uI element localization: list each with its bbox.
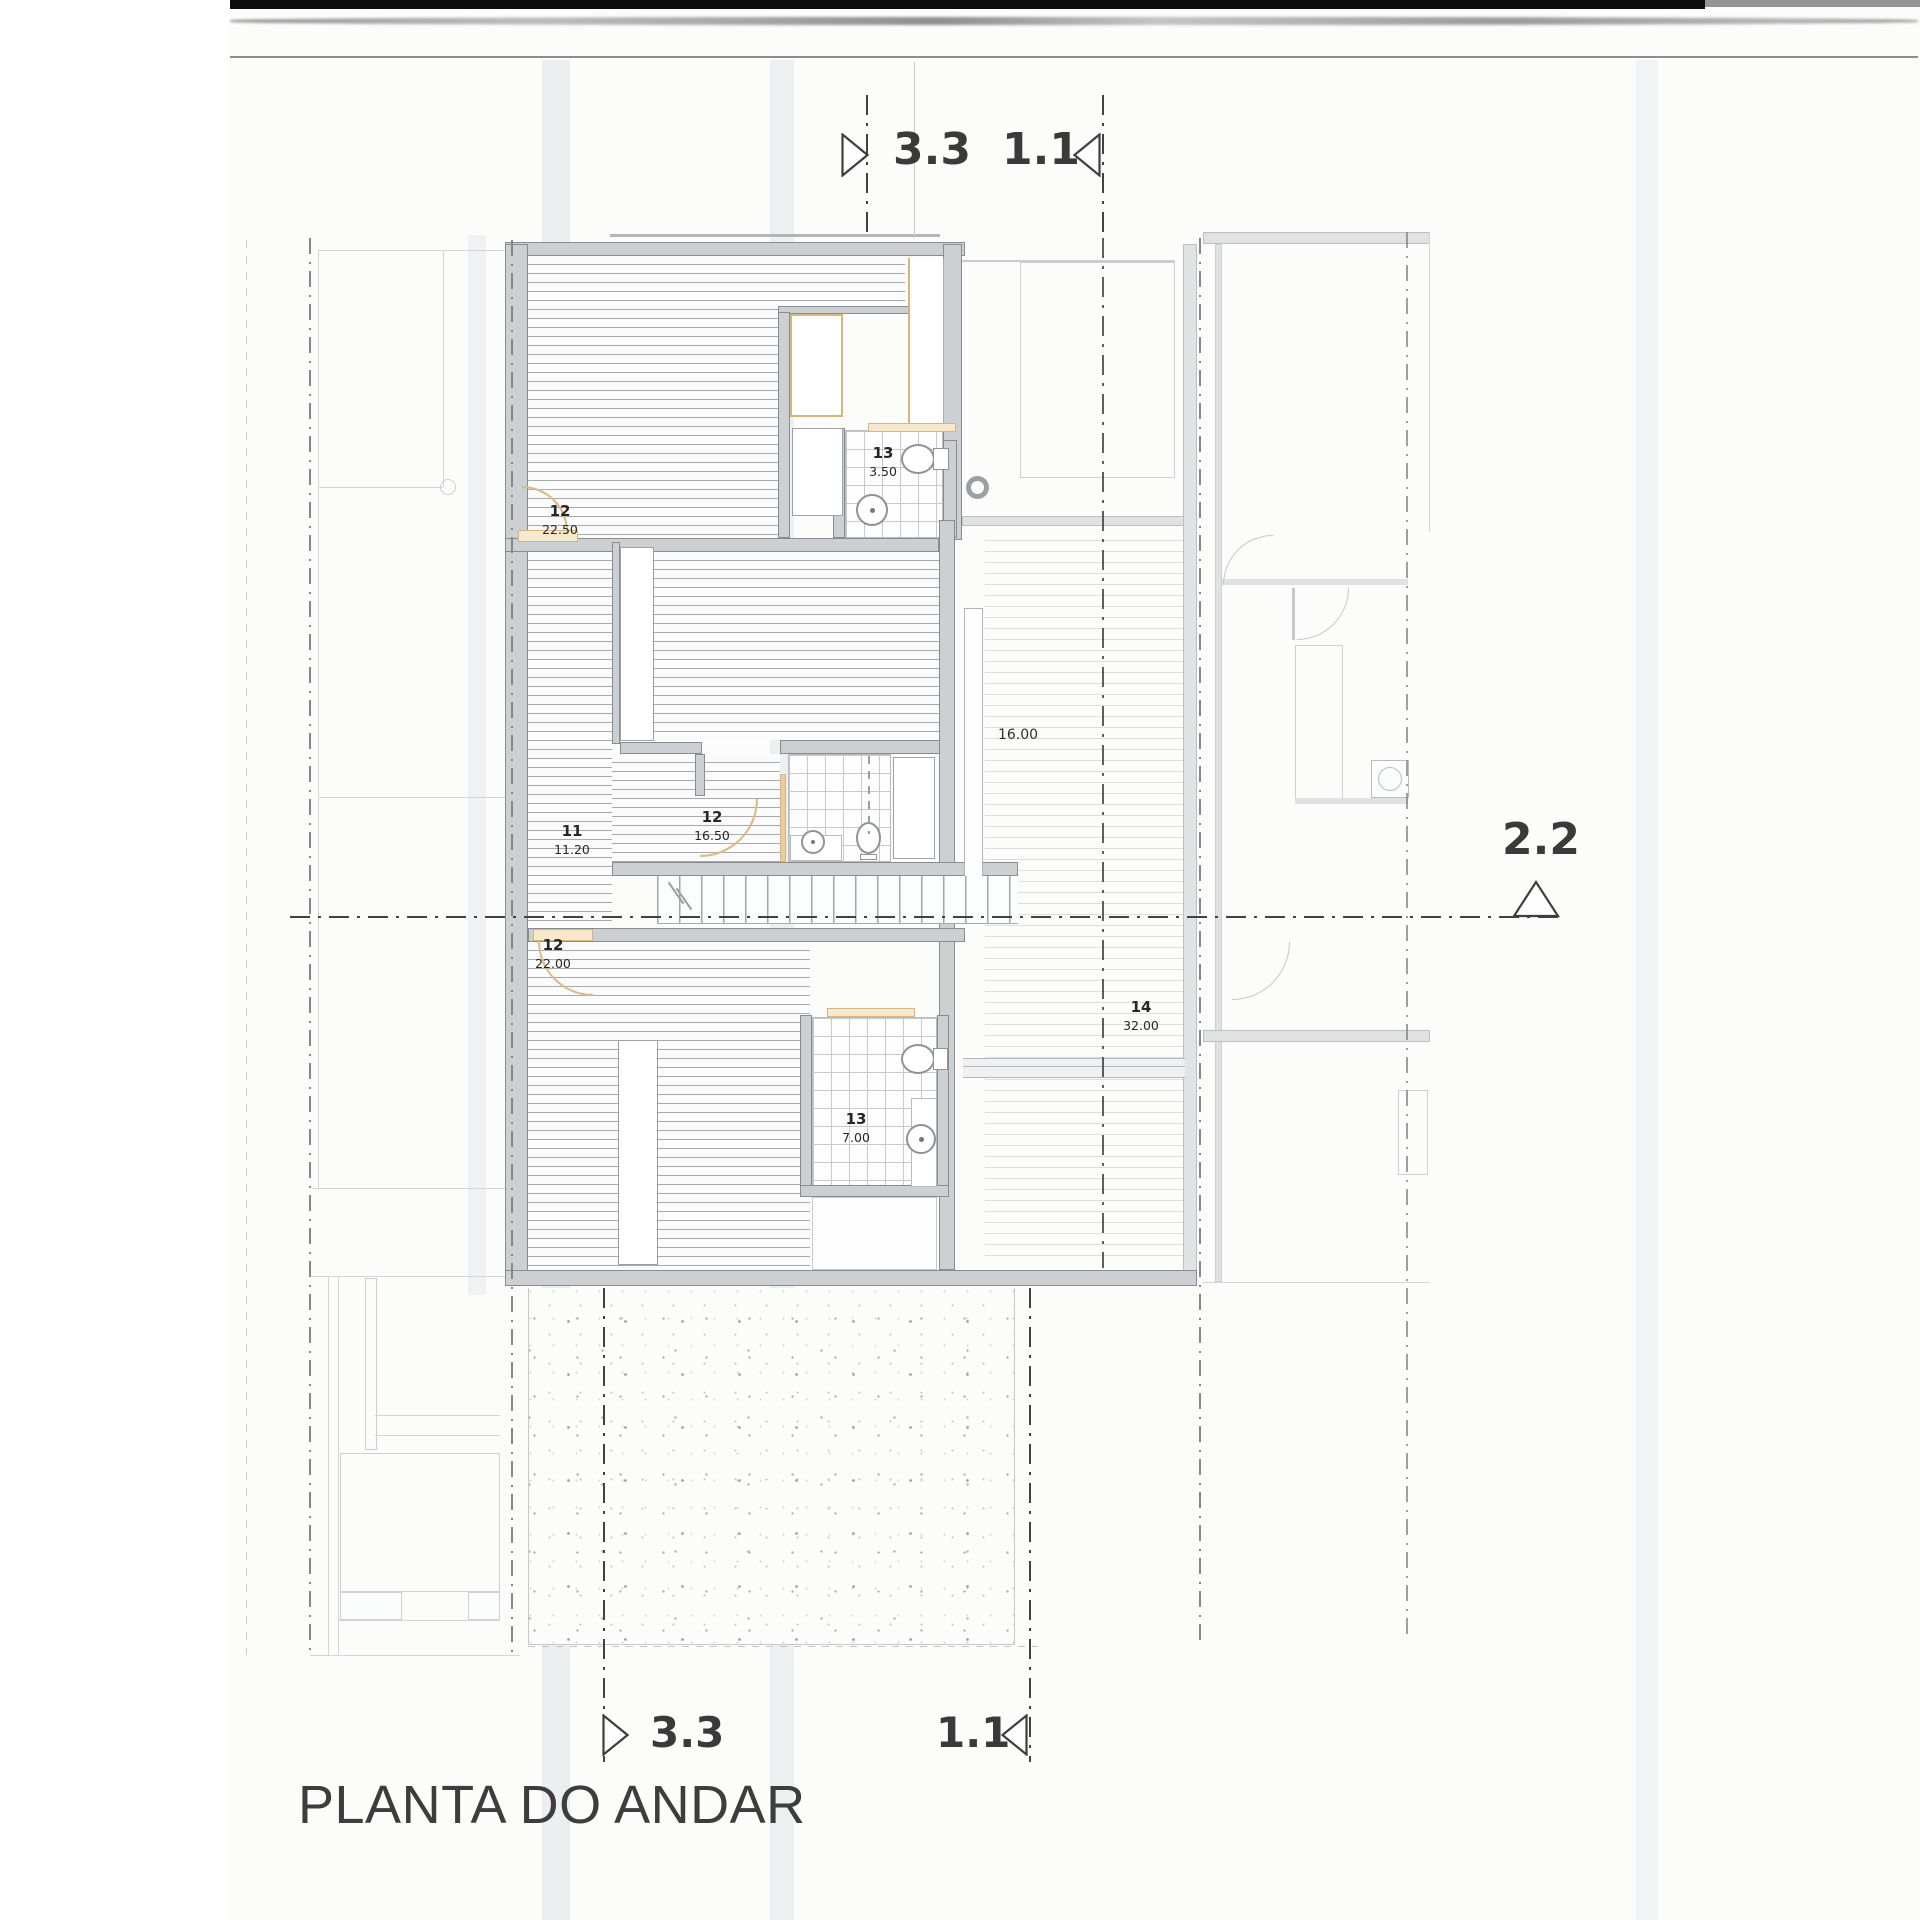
ledge-line	[963, 1066, 1185, 1067]
neighbor-room-outline	[340, 1592, 402, 1620]
wall	[505, 244, 528, 1286]
room-number: 14	[1101, 998, 1181, 1018]
room-number: 13	[816, 1110, 896, 1130]
drawing-title: PLANTA DO ANDAR	[298, 1774, 806, 1836]
railing	[964, 608, 983, 922]
neighbor-wall-line	[375, 1435, 500, 1436]
wardrobe	[792, 428, 843, 516]
neighbor-room-outline	[1398, 1090, 1428, 1175]
neighbor-wall-line	[338, 1276, 339, 1656]
door-lintel	[868, 423, 956, 432]
wall	[778, 312, 790, 538]
room-area: 11.20	[532, 842, 612, 858]
wardrobe	[618, 1040, 658, 1265]
room-area: 16.50	[672, 828, 752, 844]
section-arrow-right-icon	[602, 1714, 629, 1756]
wall	[505, 1270, 1197, 1286]
boundary-line	[309, 238, 311, 1655]
utility-room	[812, 1197, 937, 1270]
neighbor-room-outline	[340, 1453, 500, 1592]
scan-edge-line	[230, 56, 1918, 58]
boundary-line	[246, 240, 247, 1655]
room-label-hall: 11 11.20	[532, 822, 612, 858]
room-label-bedroom-bottom: 12 22.00	[513, 936, 593, 972]
scan-edge-shadow	[230, 17, 1918, 25]
neighbor-wall-line	[328, 1276, 329, 1656]
room-label-bedroom-middle: 12 16.50	[672, 808, 752, 844]
sink-icon	[856, 494, 890, 528]
sink-icon	[906, 1124, 938, 1156]
column-icon	[966, 476, 989, 499]
section-arrow-right-icon	[841, 133, 869, 177]
neighbor-wall-line	[338, 1620, 500, 1621]
wall	[778, 306, 909, 314]
wardrobe	[893, 757, 935, 859]
neighbor-wall-line	[310, 1276, 520, 1277]
section-line-2-2	[290, 916, 1562, 918]
section-line-1-1	[1102, 238, 1104, 1268]
parapet-line	[610, 234, 940, 237]
wall	[612, 862, 1018, 876]
scan-streak	[1636, 60, 1658, 1920]
wall	[937, 1015, 949, 1190]
neighbor-room-outline	[365, 1278, 377, 1450]
washing-machine-icon	[1378, 767, 1402, 791]
wall	[1183, 244, 1197, 1286]
wall	[780, 740, 949, 754]
section-marker-right-2-2: 2.2	[1502, 818, 1622, 928]
section-marker-bottom-1-1: 1.1	[936, 1704, 1096, 1774]
ledge	[963, 1058, 1185, 1078]
neighbor-wall	[1203, 1030, 1430, 1042]
dimension-label: 16.00	[978, 727, 1058, 743]
wall	[620, 742, 702, 754]
wardrobe	[620, 547, 654, 741]
neighbor-closet	[1295, 645, 1343, 800]
section-marker-bottom-3-3: 3.3	[602, 1704, 762, 1774]
section-label: 1.1	[936, 1712, 1010, 1754]
ceiling-break-line	[868, 756, 870, 834]
wardrobe	[908, 258, 944, 426]
section-label: 1.1	[1002, 128, 1080, 172]
room-label-bedroom-top: 12 22.50	[520, 502, 600, 538]
floor-plan-sheet: 12 22.50 13 3.50 12 16.50 11 11.20 12 22…	[0, 0, 1920, 1920]
room-area: 22.50	[520, 522, 600, 538]
section-line-1-1	[1029, 1288, 1031, 1762]
section-arrow-up-icon	[1512, 880, 1560, 918]
room-number: 12	[520, 502, 600, 522]
scan-edge-bar	[230, 0, 1705, 9]
wall	[695, 754, 705, 796]
floor-wood	[528, 552, 612, 928]
room-number: 12	[672, 808, 752, 828]
room-label-bathroom-bottom: 13 7.00	[816, 1110, 896, 1146]
section-arrow-left-icon	[1001, 1714, 1028, 1756]
section-marker-top-3-3: 3.3	[841, 118, 1001, 188]
neighbor-wall-line	[443, 250, 444, 487]
room-label-bathroom-top: 13 3.50	[843, 444, 923, 480]
room-area: 32.00	[1101, 1018, 1181, 1034]
door-jamb	[780, 774, 786, 862]
room-area: 22.00	[513, 956, 593, 972]
neighbor-wall-line	[318, 250, 505, 251]
wall	[800, 1015, 812, 1190]
wardrobe	[790, 314, 843, 417]
section-arrow-left-icon	[1073, 133, 1101, 177]
neighbor-wall-line	[318, 250, 319, 1190]
neighbor-wall	[1203, 232, 1430, 244]
boundary-line	[1406, 232, 1408, 1640]
wall	[505, 242, 965, 256]
boundary-line	[1199, 238, 1201, 1640]
void-edge-line	[962, 260, 1175, 262]
section-label: 3.3	[893, 128, 971, 172]
wall	[962, 516, 1197, 526]
neighbor-wall-line	[318, 487, 443, 488]
wall	[528, 928, 965, 942]
section-marker-top-1-1: 1.1	[1002, 118, 1162, 188]
neighbor-wall-line	[312, 1188, 505, 1189]
room-number: 12	[513, 936, 593, 956]
neighbor-wall-line	[1295, 798, 1408, 804]
floor-wood	[654, 552, 939, 740]
door-leaf	[1292, 588, 1295, 640]
neighbor-room-outline	[1020, 262, 1175, 478]
section-label: 2.2	[1502, 818, 1580, 862]
floor-wood	[528, 256, 778, 538]
section-label: 3.3	[650, 1712, 724, 1754]
neighbor-wall-line	[1429, 232, 1430, 532]
scan-streak	[468, 235, 486, 1295]
scan-edge-bar	[1705, 0, 1920, 7]
toilet-icon	[901, 1044, 951, 1076]
neighbor-room-outline	[468, 1592, 500, 1620]
column-icon	[440, 479, 456, 495]
floor-wood	[778, 256, 905, 312]
room-area: 3.50	[843, 464, 923, 480]
wall	[612, 542, 620, 744]
neighbor-wall-line	[310, 1655, 520, 1656]
section-line-3-3	[603, 1288, 605, 1762]
patio	[528, 1288, 1015, 1645]
room-number: 11	[532, 822, 612, 842]
sink-icon	[801, 830, 827, 856]
neighbor-wall-line	[1203, 1282, 1430, 1283]
neighbor-wall-line	[1215, 244, 1222, 1282]
room-area: 7.00	[816, 1130, 896, 1146]
neighbor-wall-line	[318, 797, 505, 798]
door-lintel	[827, 1008, 915, 1017]
room-label-living-void: 14 32.00	[1101, 998, 1181, 1034]
neighbor-wall-line	[375, 1415, 500, 1416]
room-number: 13	[843, 444, 923, 464]
